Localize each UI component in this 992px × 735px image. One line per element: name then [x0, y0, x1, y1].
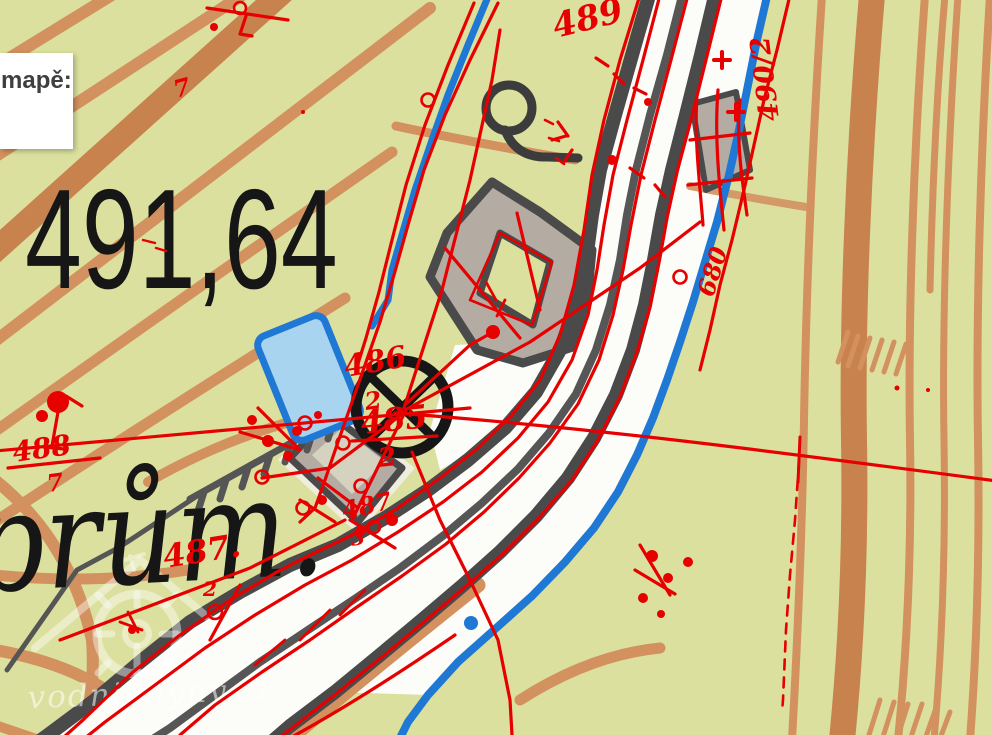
point-485: 485 — [359, 397, 429, 442]
popup-label: mapě: — [1, 67, 73, 95]
svg-text:2: 2 — [202, 577, 217, 601]
map-popup-panel: mapě: — [0, 53, 73, 149]
elevation-label: 491,64 — [25, 161, 338, 319]
spring-dot — [464, 616, 478, 630]
map-canvas[interactable]: vodnimlyny.cz 491,64 prům. — [0, 0, 992, 735]
svg-text:2: 2 — [376, 442, 398, 474]
map-viewport[interactable]: vodnimlyny.cz 491,64 prům. — [0, 0, 992, 735]
